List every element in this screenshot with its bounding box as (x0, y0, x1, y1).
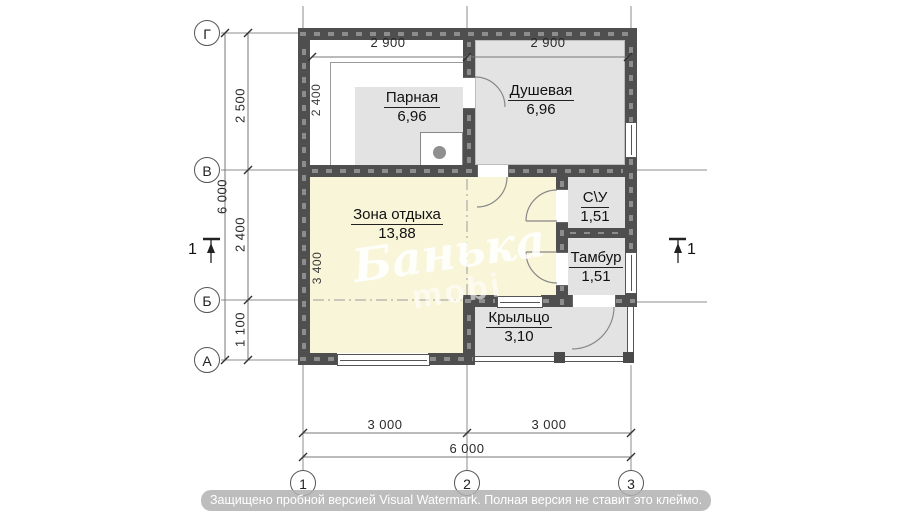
dim-bottom-3000-left: 3 000 (355, 417, 415, 432)
room-label-porch: Крыльцо 3,10 (454, 310, 584, 345)
room-area: 6,96 (347, 109, 477, 125)
dim-top-right: 2 900 (518, 35, 578, 50)
porch-post-middle (554, 352, 565, 363)
room-name: Зона отдыха (351, 207, 443, 225)
room-label-su: С\У 1,51 (530, 190, 660, 225)
room-label-parnaya: Парная 6,96 (347, 90, 477, 125)
wall-su-tambur-divider (568, 228, 625, 238)
wall-su-west-a (556, 177, 568, 189)
dim-left-1100: 1 100 (233, 295, 248, 365)
axis-circle-row-a: А (194, 347, 220, 373)
wall-row-v-left (310, 165, 477, 177)
dim-inner-2400: 2 400 (309, 65, 323, 135)
window-dushevaya-east (625, 122, 637, 158)
wall-bottom-b (428, 353, 475, 365)
room-label-dushevaya: Душевая 6,96 (476, 83, 606, 118)
dim-top-left: 2 900 (358, 35, 418, 50)
wall-tambur-south-b (614, 295, 637, 307)
room-name: Душевая (508, 83, 575, 101)
dim-bottom-3000-right: 3 000 (519, 417, 579, 432)
door-tambur-porch (572, 295, 616, 307)
watermark-banner: Защищено пробной версией Visual Watermar… (201, 490, 711, 511)
stove-dot (433, 146, 446, 159)
wall-row-v-right (507, 165, 625, 177)
room-area: 1,51 (530, 209, 660, 225)
room-area: 1,51 (531, 269, 661, 285)
section-mark-label-right: 1 (687, 241, 696, 259)
axis-circle-row-b: Б (194, 287, 220, 313)
floor-plan: Г В Б А 1 2 3 1 1 2 900 2 900 6 000 2 50… (0, 0, 910, 512)
room-area: 6,96 (476, 102, 606, 118)
wall-porch-front-b (541, 295, 556, 307)
dim-left-total: 6 000 (215, 162, 230, 232)
dim-inner-3400: 3 400 (310, 233, 324, 303)
room-name: Парная (384, 90, 440, 108)
room-name: С\У (581, 190, 610, 208)
wall-parnaya-dushevaya-upper (463, 40, 475, 77)
wall-bottom-a (298, 353, 337, 365)
room-name: Крыльцо (486, 310, 551, 328)
room-name: Тамбур (569, 250, 624, 268)
porch-railing-right (627, 307, 634, 357)
door-zona-dushevaya (477, 165, 509, 177)
room-area: 3,10 (454, 329, 584, 345)
section-mark-label-left: 1 (188, 241, 197, 259)
dim-left-2500: 2 500 (233, 71, 248, 141)
window-zona-south (337, 354, 430, 366)
axis-circle-row-g: Г (194, 20, 220, 46)
wall-su-west-b (556, 221, 568, 252)
wall-su-west-c (556, 284, 568, 307)
dim-bottom-total: 6 000 (437, 441, 497, 456)
porch-post-corner (623, 352, 634, 363)
wall-top (298, 28, 637, 40)
dim-left-2400: 2 400 (233, 200, 248, 270)
porch-railing-bottom (475, 356, 628, 362)
room-label-tambur: Тамбур 1,51 (531, 250, 661, 285)
